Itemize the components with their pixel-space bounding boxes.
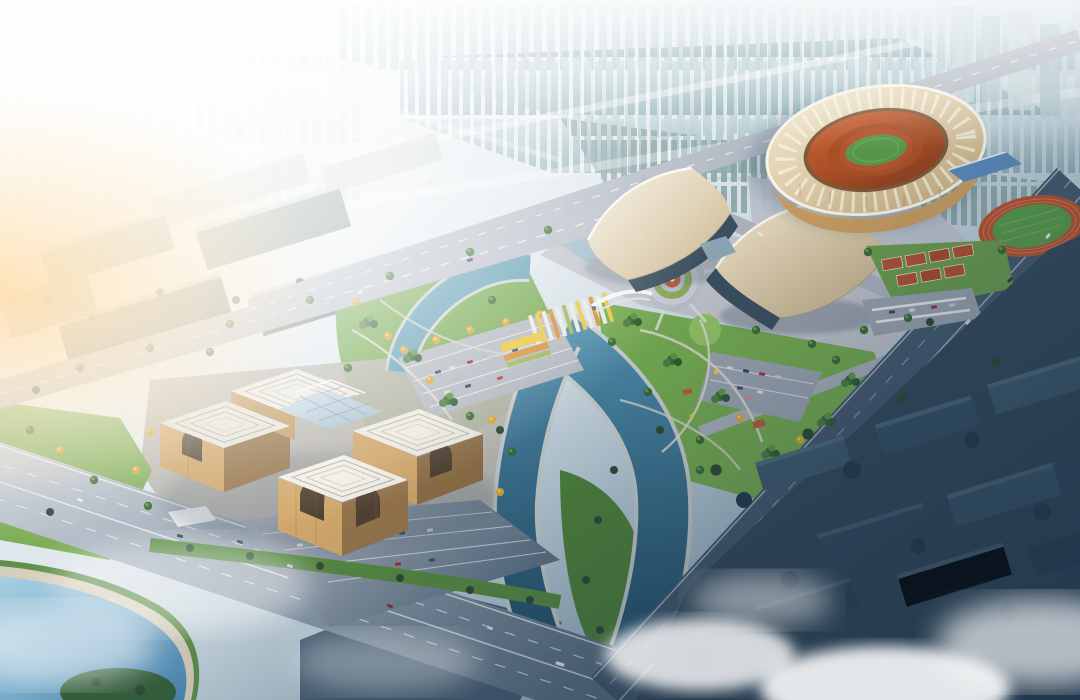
atmosphere (0, 0, 1080, 700)
aerial-rendering (0, 0, 1080, 700)
aerial-rendering-svg (0, 0, 1080, 700)
horizon-haze (0, 0, 1080, 150)
